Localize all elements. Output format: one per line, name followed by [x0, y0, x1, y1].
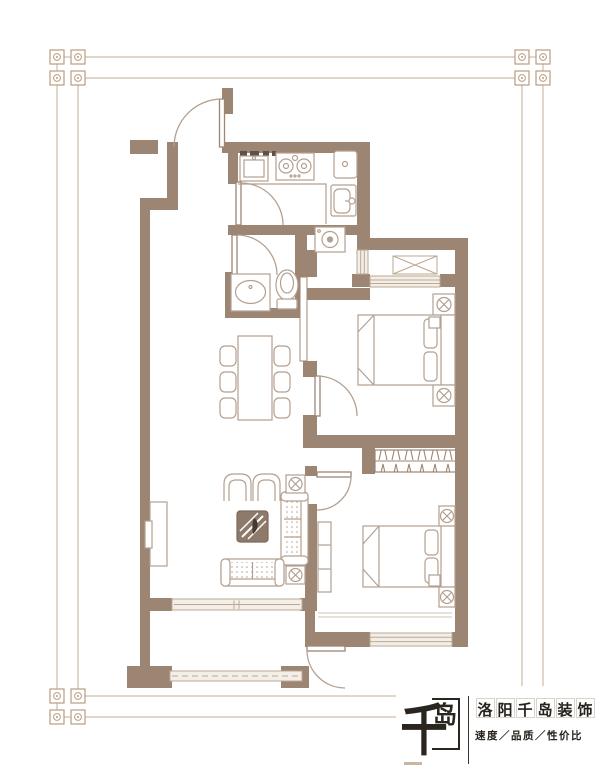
armchair-icon: [224, 474, 251, 501]
wall: [130, 140, 158, 154]
window-bedroom-lower: [370, 633, 452, 646]
brand-logo: 千 岛 洛阳千岛装饰 速度／品质／性价比: [396, 686, 594, 774]
brand-name: 洛阳千岛装饰: [475, 698, 594, 720]
sofa-icon: [281, 492, 308, 565]
furniture: [145, 151, 455, 617]
railing-balcony: [170, 671, 302, 681]
wall: [303, 435, 463, 448]
chair: [274, 346, 290, 366]
fridge-icon: [334, 151, 357, 178]
wall: [357, 142, 370, 250]
wall: [452, 632, 468, 647]
wall: [140, 208, 150, 668]
loveseat-icon: [221, 559, 284, 586]
floor-plan-canvas: [0, 0, 600, 774]
kitchen-fixtures: [238, 151, 357, 224]
brand-character: 洛: [476, 698, 495, 718]
glass-partition: [300, 277, 307, 361]
chair: [274, 372, 290, 392]
washbasin-icon: [231, 274, 270, 311]
door-kitchen: [236, 182, 283, 225]
lamp-side-table-icon: [286, 566, 305, 584]
dining-table: [238, 336, 272, 420]
window-bedroom-upper: [370, 276, 440, 287]
wall: [303, 361, 317, 377]
wall: [305, 632, 370, 647]
bed-icon: [363, 526, 455, 587]
nightstand-lamp-icon: [439, 587, 455, 607]
brand-character: 阳: [496, 698, 515, 718]
window-laundry: [357, 250, 368, 274]
brand-character: 装: [556, 698, 575, 718]
wall: [305, 466, 317, 476]
living-room-set: [145, 474, 308, 586]
washing-machine-icon: [315, 227, 345, 252]
brand-character: 千: [516, 698, 535, 718]
nightstand-lamp-icon: [433, 294, 455, 315]
chair: [220, 346, 236, 366]
toilet-icon: [276, 270, 298, 309]
bedroom-upper-set: [358, 294, 455, 406]
nightstand-lamp-icon: [439, 506, 455, 526]
coffee-table-icon: [237, 511, 268, 542]
brand-character: 岛: [536, 698, 555, 718]
chair: [220, 372, 236, 392]
wall: [303, 415, 317, 437]
brand-divider: [468, 696, 469, 764]
wall: [455, 238, 468, 647]
sliding-door-balcony: [172, 599, 302, 610]
wall: [303, 250, 317, 277]
nightstand-lamp-icon: [433, 385, 455, 406]
door-bedroom-lower: [317, 472, 351, 510]
cooktop-icon: [276, 153, 314, 180]
wall: [150, 598, 172, 611]
lamp-side-table-icon: [286, 475, 305, 493]
brand-tagline: 速度／品质／性价比: [475, 728, 594, 743]
kitchen-sink-icon: [240, 156, 268, 181]
wall: [360, 238, 468, 250]
ac-platform: [393, 256, 437, 274]
dining-set: [220, 336, 290, 420]
brand-text-block: 洛阳千岛装饰 速度／品质／性价比: [475, 698, 594, 743]
door-balcony: [307, 646, 345, 688]
bed-icon: [358, 315, 455, 385]
brand-mark: 千 岛: [398, 686, 464, 770]
door-entry: [174, 99, 225, 147]
brand-mark-seal: [404, 762, 422, 765]
wall: [440, 274, 455, 287]
chair: [274, 398, 290, 418]
chair: [220, 398, 236, 418]
wall: [362, 446, 375, 474]
wall: [228, 142, 238, 184]
floor-plan-page: 千 岛 洛阳千岛装饰 速度／品质／性价比: [0, 0, 600, 774]
dresser-icon: [318, 522, 331, 592]
wall: [352, 274, 370, 287]
bedroom-lower-set: [318, 506, 455, 617]
wall: [127, 666, 172, 688]
wall: [300, 598, 317, 611]
basin-icon: [331, 185, 356, 216]
door-bathroom: [232, 235, 277, 275]
brand-mark-sub: 岛: [432, 698, 460, 750]
bathroom-fixtures: [231, 270, 298, 311]
armchair-icon: [253, 474, 280, 501]
brand-character: 饰: [576, 698, 595, 718]
wardrobe-hanging: [375, 450, 458, 472]
door-bedroom-upper: [315, 376, 357, 416]
